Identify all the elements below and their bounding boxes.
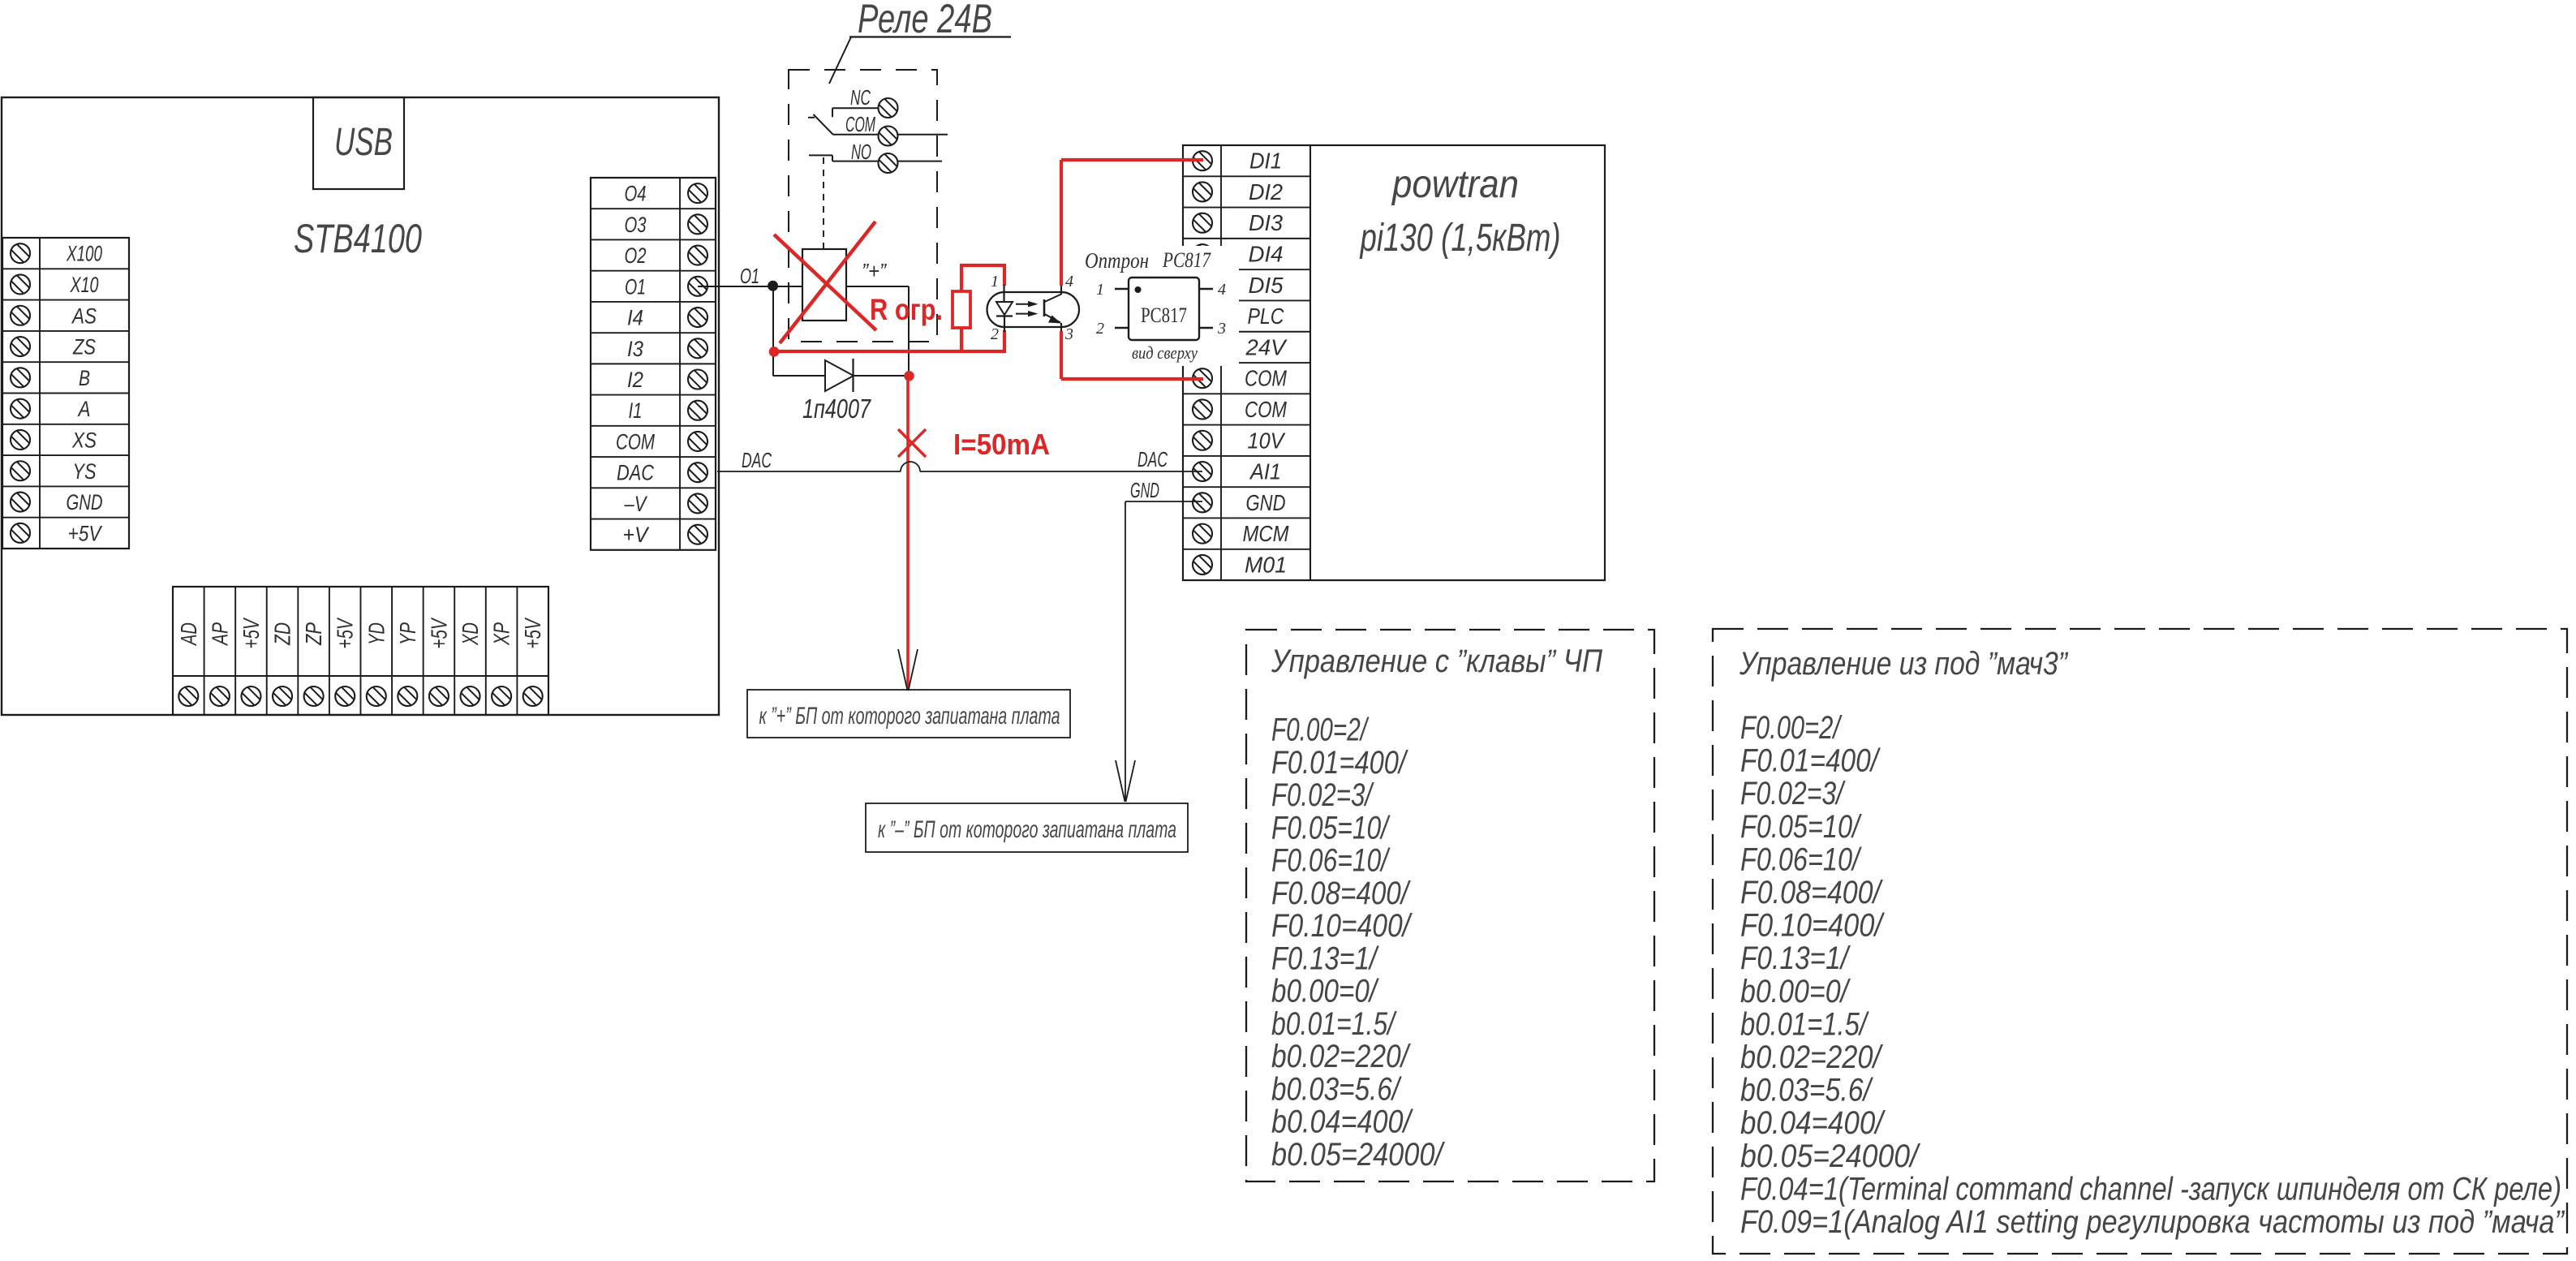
- svg-text:F0.01=400/: F0.01=400/: [1271, 745, 1408, 781]
- svg-text:COM: COM: [845, 112, 875, 136]
- svg-text:2: 2: [991, 325, 999, 343]
- svg-text:I=50mA: I=50mA: [953, 428, 1050, 461]
- svg-text:F0.04=1(Terminal command chann: F0.04=1(Terminal command channel -запуск…: [1740, 1171, 2561, 1207]
- svg-text:4: 4: [1065, 273, 1073, 291]
- svg-text:O2: O2: [625, 243, 647, 268]
- svg-text:F0.10=400/: F0.10=400/: [1271, 908, 1413, 944]
- svg-text:GND: GND: [1246, 490, 1286, 515]
- svg-text:F0.05=10/: F0.05=10/: [1271, 810, 1391, 846]
- svg-text:вид сверху: вид сверху: [1132, 342, 1198, 363]
- svg-text:COM: COM: [1245, 366, 1288, 391]
- svg-text:1: 1: [991, 273, 999, 291]
- svg-text:DI3: DI3: [1249, 210, 1283, 235]
- svg-text:PLC: PLC: [1248, 303, 1285, 329]
- svg-text:powtran: powtran: [1391, 163, 1519, 206]
- svg-text:F0.10=400/: F0.10=400/: [1740, 908, 1885, 944]
- svg-text:4: 4: [1218, 281, 1226, 299]
- svg-text:+V: +V: [623, 523, 651, 547]
- svg-text:b0.02=220/: b0.02=220/: [1271, 1039, 1411, 1074]
- svg-text:AP: AP: [207, 622, 232, 647]
- svg-text:F0.00=2/: F0.00=2/: [1740, 710, 1843, 746]
- svg-text:PC817: PC817: [1162, 248, 1211, 272]
- svg-text:DAC: DAC: [617, 461, 654, 485]
- svg-text:b0.00=0/: b0.00=0/: [1271, 974, 1379, 1009]
- svg-text:+5V: +5V: [333, 618, 358, 649]
- svg-text:b0.00=0/: b0.00=0/: [1740, 974, 1851, 1009]
- svg-text:X100: X100: [66, 242, 102, 266]
- svg-text:+5V: +5V: [426, 618, 451, 649]
- svg-text:DI2: DI2: [1249, 179, 1283, 204]
- svg-text:2: 2: [1096, 320, 1104, 338]
- svg-text:3: 3: [1064, 325, 1073, 343]
- svg-text:NC: NC: [850, 85, 871, 110]
- svg-text:B: B: [79, 366, 90, 390]
- svg-text:Управление с ”клавы” ЧП: Управление с ”клавы” ЧП: [1271, 643, 1603, 679]
- svg-text:b0.01=1.5/: b0.01=1.5/: [1271, 1006, 1397, 1042]
- svg-text:F0.02=3/: F0.02=3/: [1271, 777, 1374, 813]
- svg-text:b0.01=1.5/: b0.01=1.5/: [1740, 1006, 1869, 1042]
- svg-text:1п4007: 1п4007: [802, 394, 871, 424]
- svg-text:24V: 24V: [1245, 334, 1288, 359]
- svg-text:I3: I3: [627, 337, 643, 361]
- svg-text:”+”: ”+”: [862, 259, 887, 283]
- svg-text:X10: X10: [70, 273, 99, 297]
- svg-text:F0.13=1/: F0.13=1/: [1740, 940, 1851, 976]
- svg-text:F0.08=400/: F0.08=400/: [1740, 875, 1883, 910]
- svg-text:GND: GND: [67, 490, 103, 514]
- svg-text:b0.04=400/: b0.04=400/: [1740, 1105, 1886, 1141]
- svg-text:к ”+” БП от которого запиатана: к ”+” БП от которого запиатана плата: [759, 703, 1060, 729]
- svg-text:YD: YD: [363, 622, 389, 645]
- svg-text:I4: I4: [627, 306, 643, 330]
- svg-text:GND: GND: [1130, 478, 1159, 502]
- svg-text:ZP: ZP: [301, 622, 326, 646]
- svg-text:b0.05=24000/: b0.05=24000/: [1271, 1137, 1445, 1173]
- svg-text:STB4100: STB4100: [294, 216, 422, 261]
- svg-text:COM: COM: [616, 429, 655, 454]
- svg-text:O1: O1: [625, 274, 646, 299]
- svg-text:–V: –V: [624, 492, 648, 516]
- svg-text:F0.06=10/: F0.06=10/: [1271, 843, 1391, 879]
- svg-text:USB: USB: [334, 121, 393, 164]
- svg-text:F0.06=10/: F0.06=10/: [1740, 841, 1862, 877]
- svg-text:b0.03=5.6/: b0.03=5.6/: [1740, 1073, 1873, 1108]
- svg-text:O3: O3: [625, 213, 647, 237]
- svg-text:M01: M01: [1245, 552, 1287, 577]
- svg-text:F0.01=400/: F0.01=400/: [1740, 743, 1881, 779]
- svg-text:DI1: DI1: [1249, 148, 1282, 174]
- svg-text:O1: O1: [740, 264, 759, 288]
- svg-text:F0.05=10/: F0.05=10/: [1740, 809, 1862, 845]
- svg-text:A: A: [77, 397, 91, 421]
- svg-text:DAC: DAC: [742, 448, 772, 472]
- svg-text:Реле 24В: Реле 24В: [858, 0, 992, 41]
- svg-text:AI1: AI1: [1249, 459, 1281, 484]
- svg-text:F0.13=1/: F0.13=1/: [1271, 940, 1379, 976]
- svg-text:3: 3: [1217, 320, 1226, 338]
- svg-text:I1: I1: [629, 398, 643, 423]
- svg-text:F0.09=1(Analog AI1 setting рег: F0.09=1(Analog AI1 setting регулировка ч…: [1740, 1204, 2565, 1240]
- svg-text:YS: YS: [73, 459, 97, 484]
- svg-text:b0.05=24000/: b0.05=24000/: [1740, 1138, 1920, 1174]
- svg-text:+5V: +5V: [239, 618, 264, 649]
- svg-text:MCM: MCM: [1243, 521, 1290, 546]
- svg-text:pi130 (1,5кВт): pi130 (1,5кВт): [1359, 217, 1561, 260]
- svg-text:b0.02=220/: b0.02=220/: [1740, 1039, 1883, 1075]
- svg-text:b0.04=400/: b0.04=400/: [1271, 1104, 1413, 1140]
- svg-text:F0.00=2/: F0.00=2/: [1271, 712, 1370, 748]
- svg-text:YP: YP: [395, 622, 420, 645]
- svg-text:Оптрон: Оптрон: [1085, 248, 1149, 273]
- svg-text:к ”–” БП от которого запиатана: к ”–” БП от которого запиатана плата: [878, 816, 1176, 843]
- svg-text:Управление из под ”мач3”: Управление из под ”мач3”: [1739, 646, 2068, 682]
- svg-text:DAC: DAC: [1137, 447, 1168, 471]
- svg-text:DI4: DI4: [1249, 242, 1284, 267]
- svg-text:XS: XS: [71, 428, 97, 452]
- svg-text:DI5: DI5: [1249, 273, 1284, 298]
- svg-text:+5V: +5V: [68, 521, 104, 545]
- svg-text:1: 1: [1096, 281, 1104, 299]
- svg-text:R огр.: R огр.: [870, 293, 943, 326]
- svg-text:+5V: +5V: [520, 618, 545, 649]
- svg-text:ZD: ZD: [270, 622, 295, 646]
- svg-text:O4: O4: [625, 182, 647, 206]
- svg-text:F0.08=400/: F0.08=400/: [1271, 876, 1411, 911]
- svg-text:COM: COM: [1245, 397, 1288, 422]
- svg-text:I2: I2: [627, 368, 643, 392]
- svg-text:F0.02=3/: F0.02=3/: [1740, 776, 1846, 811]
- svg-text:b0.03=5.6/: b0.03=5.6/: [1271, 1071, 1402, 1107]
- svg-text:ZS: ZS: [72, 335, 96, 359]
- svg-text:XD: XD: [458, 622, 483, 646]
- svg-text:NO: NO: [851, 140, 871, 164]
- svg-text:XP: XP: [489, 622, 514, 646]
- svg-text:PC817: PC817: [1141, 303, 1187, 327]
- svg-text:AD: AD: [176, 622, 201, 646]
- svg-text:AS: AS: [71, 303, 97, 328]
- svg-text:10V: 10V: [1248, 428, 1286, 453]
